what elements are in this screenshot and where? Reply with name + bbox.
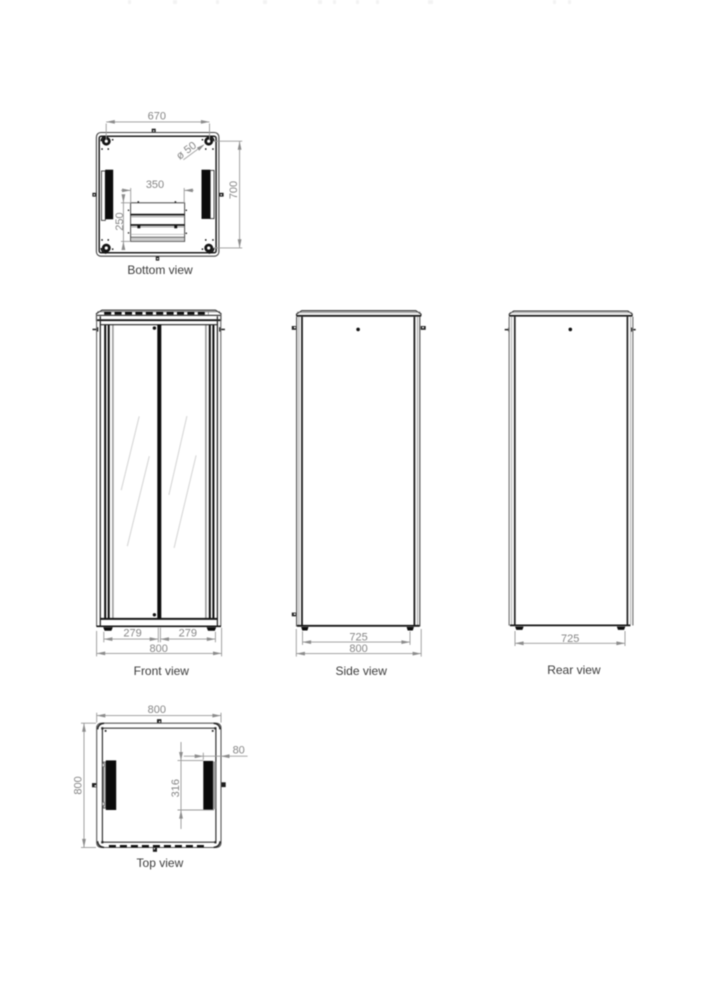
svg-text:800: 800 [349, 643, 367, 655]
svg-text:250: 250 [114, 212, 126, 230]
svg-text:Side view: Side view [336, 664, 388, 678]
svg-text:Rear view: Rear view [547, 663, 601, 677]
svg-text:Front view: Front view [134, 664, 190, 678]
svg-text:700: 700 [228, 181, 240, 199]
svg-text:800: 800 [72, 776, 84, 794]
svg-text:Bottom view: Bottom view [127, 263, 193, 277]
svg-text:800: 800 [150, 643, 168, 655]
svg-text:80: 80 [233, 744, 245, 756]
svg-text:Top view: Top view [137, 856, 184, 870]
svg-text:725: 725 [561, 633, 579, 645]
svg-text:350: 350 [146, 179, 164, 191]
svg-text:670: 670 [148, 110, 166, 122]
svg-text:725: 725 [349, 632, 367, 644]
svg-text:316: 316 [170, 779, 182, 797]
svg-text:279: 279 [179, 627, 197, 639]
svg-text:800: 800 [148, 704, 166, 716]
svg-text:279: 279 [123, 627, 141, 639]
